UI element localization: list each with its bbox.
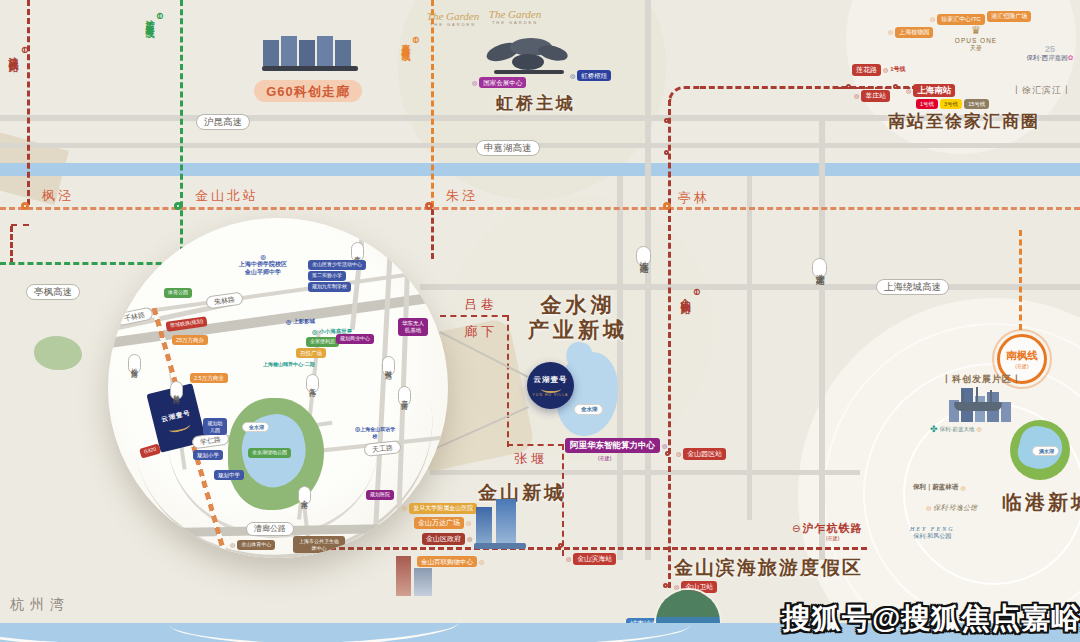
poi-icon: ◎ (479, 559, 484, 565)
boundary-lvxiang-top (440, 315, 508, 317)
inset-kindergarten-pill: 规划幼儿园 (203, 418, 227, 435)
zhujing-label: 朱泾 (446, 187, 478, 205)
inset-biz2-5-pill: 2.5万方商业 (190, 373, 228, 383)
jinshan-railway-label: ⊖金山铁路 (680, 288, 701, 300)
detail-inset-map: 云湖壹号 千林路 朱林路 金山工业区大道 市域铁路(规划) 松金公路 G320 … (108, 218, 448, 558)
road-vert-shenhai (645, 0, 651, 560)
poi-icon: ◎ (230, 542, 235, 548)
inset-road-label-jiugong: 九工路 (306, 374, 319, 393)
huzhahang-line (330, 547, 867, 550)
botanical-pill: ◎ 上海植物园 (888, 27, 933, 38)
inset-lakepark-pill: 金水湖绿地公园 (248, 448, 291, 458)
xuhui-riverside-label: 丨徐汇滨江丨 (1012, 84, 1072, 97)
dishuihu-pill: 滴水湖 (1032, 446, 1059, 456)
hujin-expwy-pill: 沪金高速 (812, 258, 827, 278)
south-station-lines: 1号线 3号线 15号线 (916, 99, 989, 109)
shenjiahu-expwy-pill: 申嘉湖高速 (476, 140, 540, 156)
lingang-title: 临港新城 (1002, 489, 1080, 516)
road-shenjiahu-expwy (0, 143, 1080, 148)
g60-pill: G60科创走廊 (254, 80, 362, 102)
lvxiang-label: 吕巷 (464, 296, 498, 314)
binhai-station: ◎ 金山滨海站 (566, 553, 616, 565)
hukun-hsr-line-west (0, 262, 180, 265)
jinshan-railway-line (668, 100, 671, 588)
poi-icon: ◎ (854, 93, 859, 99)
shenhai-expwy-pill: 沈海高速 (636, 246, 651, 266)
rail-below-zhujing (431, 209, 434, 259)
bg-park-west (34, 336, 82, 370)
inset-school-c-pill: 规划九年制学校 (308, 282, 351, 292)
rail-icon: ⊖ (792, 523, 800, 534)
fengjing-node (21, 202, 29, 210)
hukun-railway-line-south (10, 226, 13, 264)
inset-road-label-songjin: 松金公路 (128, 354, 141, 374)
g60-building-icon (262, 36, 362, 76)
poi-icon: ◎ (570, 73, 575, 79)
itc-pill: ◎ 徐家汇中心ITC (930, 14, 985, 25)
jinshuihu-pill: 金水湖 (574, 404, 603, 415)
inset-middle-pill: 规划中学 (214, 470, 244, 480)
hongqiao-hub-pill: ◎ 虹桥枢纽 (570, 70, 611, 81)
government-pill: 金山区政府 ◎ (422, 533, 472, 545)
rail-icon: ⊖ (19, 46, 29, 56)
ship-icon (954, 398, 1002, 418)
huzhahang-label: ⊖ 沪乍杭铁路 (792, 521, 862, 536)
hukun-expwy-pill: 沪昆高速 (196, 114, 250, 130)
jinshan-rail-node-1 (664, 118, 669, 123)
hukun-hsr-label: ⊖沪昆客运专线 (144, 12, 164, 24)
poi-icon: ◎ (662, 443, 667, 449)
yunhu-arc (541, 385, 561, 393)
inset-cinema-label: ◎上影影城 (286, 318, 315, 325)
watermark: 搜狐号@搜狐焦点嘉峪关站 (782, 599, 1080, 639)
hukun-railway-line (27, 0, 30, 205)
zhangyan-label: 张堰 (514, 450, 548, 468)
inset-familymart-pill: 全家便利店 (306, 337, 339, 347)
tinglin-label: 亭林 (678, 189, 710, 207)
inset-road-label-tingzhu: 亭朱公路 (351, 242, 364, 262)
necc-building-icon (486, 40, 572, 78)
inset-school-b-pill: 第二实验小学 (308, 271, 346, 281)
flower-icon: ✿ (1068, 54, 1074, 61)
poly-flower-logo: ✤ 保利·蔚蓝天地 ◎ (930, 424, 982, 434)
poi-icon: ◎ (566, 556, 571, 562)
rail-icon: ⊖ (691, 288, 701, 298)
inset-sportspark-pill: 体育公园 (164, 288, 192, 298)
inset-sportscenter: ◎金山体育中心 (230, 540, 275, 550)
inset-road-label-qiuxing: 秋星路 (170, 381, 183, 400)
tingfeng-expwy-pill: 亭枫高速 (26, 284, 80, 300)
nanfeng-dash (1019, 230, 1022, 330)
inset-biz25-pill: 25万方商办 (172, 335, 208, 345)
poi-icon: ◎ (467, 536, 472, 542)
ganghui-pill: ◎ 港汇恒隆广场 (980, 11, 1031, 22)
hongqiao-title: 虹桥主城 (496, 92, 576, 115)
poly-c-logo: HEY FENG 保利·和风公园 (910, 526, 955, 541)
weizhan-node (663, 583, 668, 588)
new-city-towers-icon (474, 499, 534, 549)
zhujing-node (425, 202, 433, 210)
yuanqu-station: ◎ 金山园区站 (676, 448, 726, 460)
inset-elder-label: 上海椿山颐养中心·二期 (263, 361, 315, 368)
poi-icon: ◎ (976, 426, 981, 432)
necc-pill: ◎ 国家会展中心 (472, 77, 526, 88)
crown-icon: ♛ (948, 24, 1004, 37)
inset-hospital-plan-pill: 规划医院 (366, 490, 394, 500)
inset-site-arc (167, 420, 191, 434)
wanda-pill: 金山万达广场 ◎ (414, 517, 471, 529)
poly-west-logo: 25 保利·西岸嘉园✿ (1022, 44, 1078, 63)
inset-site-label: 云湖壹号 (160, 409, 191, 423)
south-station: ◎ 上海南站 (906, 84, 955, 97)
poi-icon: ◎ (960, 485, 965, 491)
wave-arc-2 (170, 600, 690, 642)
south-station-area-title: 南站至徐家汇商圈 (888, 110, 1040, 133)
road-vert-tingwei (617, 176, 623, 560)
poi-icon: ◎ (466, 520, 471, 526)
poi-icon: ◎ (930, 16, 935, 22)
hukun-railway-elbow (11, 224, 29, 226)
poi-icon: ◎ (286, 319, 291, 325)
inset-road-label-caolang: 漕廊公路 (246, 522, 294, 536)
industry-city-title: 金水湖 产业新城 (508, 292, 648, 342)
binhai-node (558, 543, 563, 548)
poi-icon: ◎ (676, 451, 681, 457)
opus-one-logo: ♛ OPUS ONE 天荟 (948, 24, 1004, 53)
road-vert-hujin (819, 115, 825, 560)
clover-icon: ✤ (930, 424, 938, 434)
jinshan-north-node (174, 202, 182, 210)
rail-icon: ⊖ (154, 12, 164, 22)
resort-title: 金山滨海旅游度假区 (674, 555, 863, 581)
lianhua-station: 莲花路 ◎ 1号线 (852, 64, 906, 76)
tinglin-node (663, 202, 671, 210)
road-vert-center-east (747, 176, 752, 520)
inset-college-label: ◎ 上海中侨学院校区 金山平师中学 (230, 254, 296, 277)
raocheng-expwy-pill: 上海绕城高速 (876, 279, 949, 295)
inset-wuyue-pill: 吾悦广场 (296, 348, 326, 358)
rail-icon: ⊖ (410, 36, 420, 46)
inset-primary-pill: 规划小学 (193, 450, 223, 460)
brand-logo-1: The Garden THE GARDEN (424, 10, 482, 27)
inset-publichealth-pill: 上海市公共卫生临床中心 (293, 536, 345, 553)
hukun-hsr-line (180, 0, 183, 262)
inset-road-label-jinshui: 金水路 (298, 486, 311, 505)
inset-road-label-tingwei: 亭卫公路 (398, 386, 411, 406)
fengjing-label: 枫泾 (42, 187, 74, 205)
metro1-node-2 (893, 84, 898, 89)
hospital-pill: ◎ 复旦大学附属金山医院 (402, 503, 477, 514)
poi-icon: ◎ (926, 505, 931, 511)
inset-school-a-pill: 金山区青少年活动中心 (308, 260, 366, 270)
brand-logo-2: The Garden THE GARDEN (486, 8, 544, 25)
poi-icon: ◎ (472, 80, 477, 86)
hukun-railway-label: ⊖沪昆铁路 (8, 46, 29, 58)
jiaqingsongjin-label: ⊖嘉青松金线 (400, 36, 420, 48)
poi-icon: ◎ (402, 505, 407, 511)
poi-icon: ◎ (888, 29, 893, 35)
yunhu-logo-badge: 云湖壹号 YUN HU VILLA (527, 362, 574, 409)
poly-b-logo: ◎ 保利·玲逸公馆 (926, 503, 977, 513)
poi-icon: ◎ (312, 329, 317, 335)
langxia-label: 廊下 (464, 323, 498, 341)
poi-icon: ◎ (980, 13, 985, 19)
poi-icon: ◎ (883, 67, 888, 73)
poly-a-logo: 保利｜蔚蓝林语 ◎ (913, 483, 966, 492)
jiaqingsongjin-line (431, 0, 434, 207)
river-band (0, 163, 1080, 176)
inset-bizcenter-pill: 规划商业中心 (336, 334, 374, 344)
xinzhuang-station: ◎ 莘庄站 (854, 90, 890, 102)
jinshan-north-label: 金山北站 (195, 187, 259, 205)
kechuang-label: 丨科创发展片区丨 (942, 373, 1022, 386)
inset-bilingual-label: ◎上海金山双语学校 (354, 426, 396, 439)
jinshan-rail-node-2 (664, 150, 669, 155)
inset-lake-pill: 金水湖 (242, 422, 269, 432)
poi-icon: ◎ (906, 88, 911, 94)
tower-icon-west (392, 554, 442, 600)
jinshan-railway-curve (668, 86, 704, 102)
ali-center-pill: 阿里华东智能算力中心 ◎ (565, 438, 667, 453)
huzhahang-note: (在建) (826, 535, 839, 541)
inset-road-label-shidai: 时代大道 (382, 356, 395, 376)
inset-drone-pill: 华东无人机基地 (398, 318, 428, 336)
boundary-zhangyan-top (507, 444, 564, 446)
ali-note: (在建) (598, 455, 611, 461)
metro1-node-1 (846, 84, 851, 89)
location-map: 云湖壹号 千林路 朱林路 金山工业区大道 市域铁路(规划) 松金公路 G320 … (0, 0, 1080, 642)
coastal-railway-line (0, 207, 1080, 210)
